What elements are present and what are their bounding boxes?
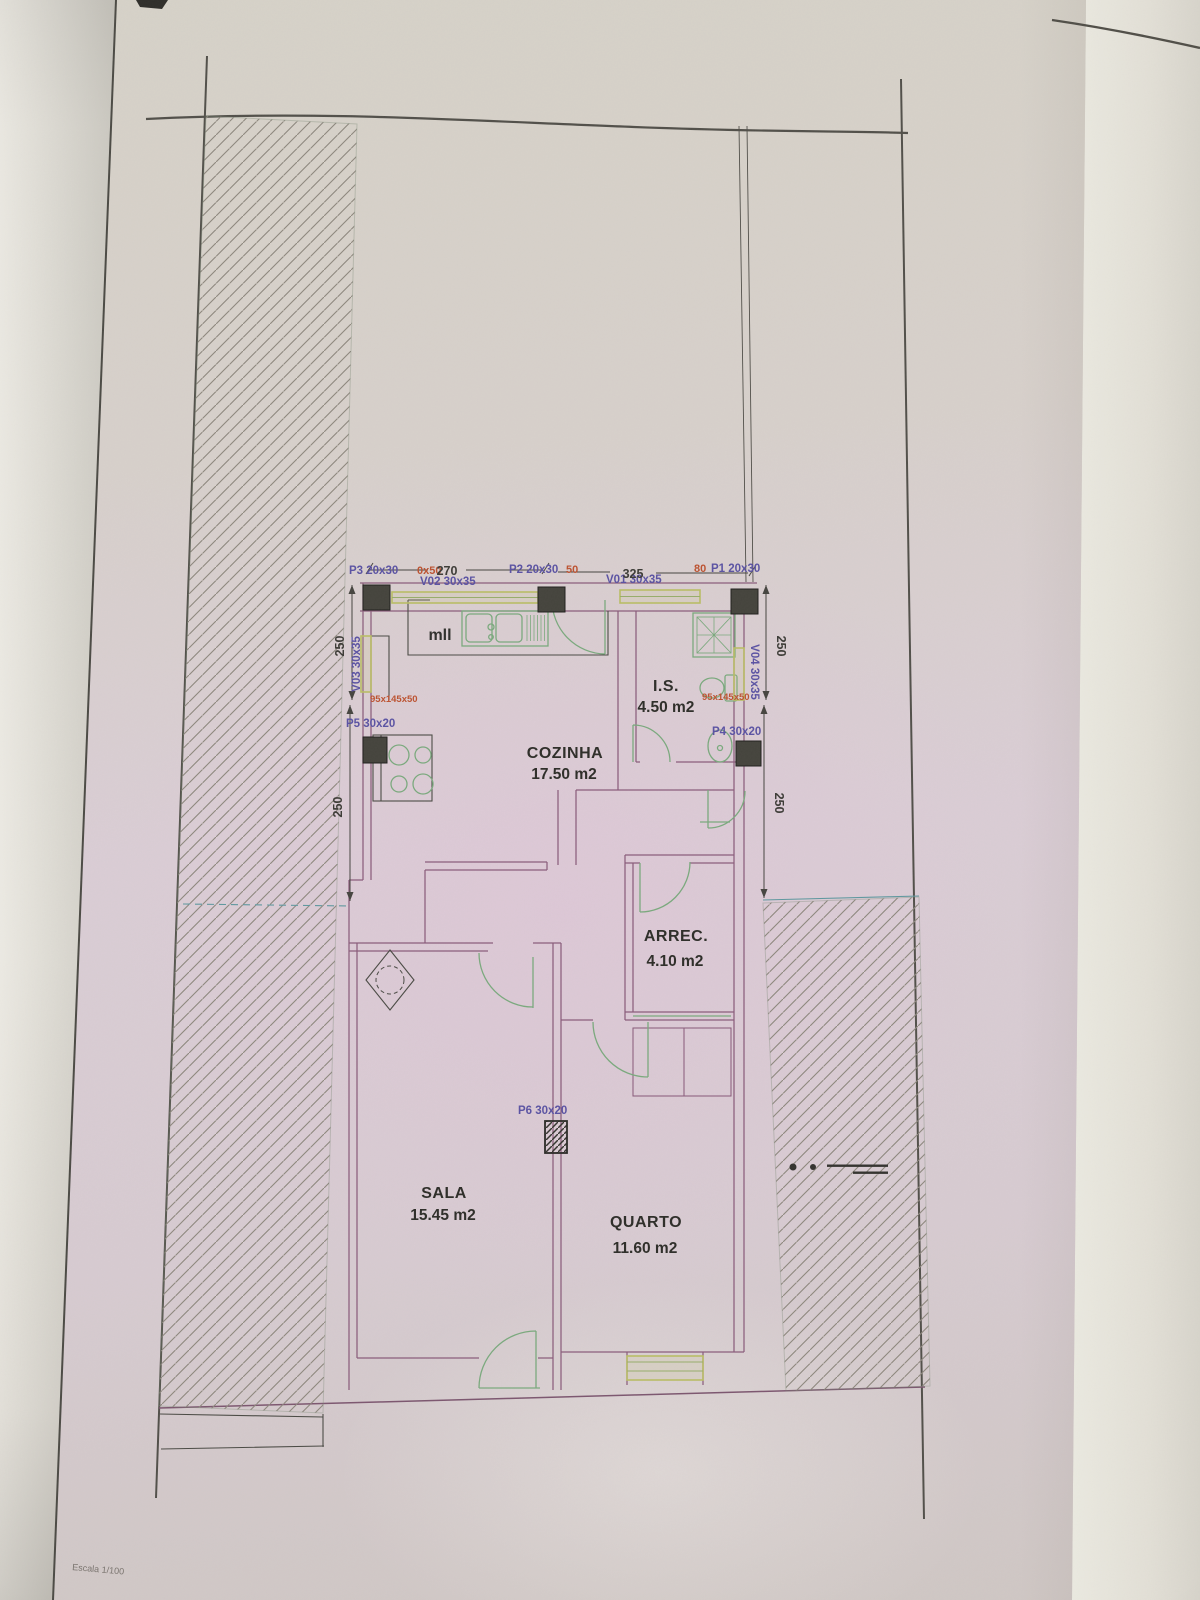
photo-of-floor-plan: COZINHA 17.50 m2 I.S. 4.50 m2 ARREC. 4.1… (0, 0, 1200, 1600)
floor-plan-drawing: COZINHA 17.50 m2 I.S. 4.50 m2 ARREC. 4.1… (0, 0, 1200, 1600)
paper-grain-overlay (0, 0, 1200, 1600)
